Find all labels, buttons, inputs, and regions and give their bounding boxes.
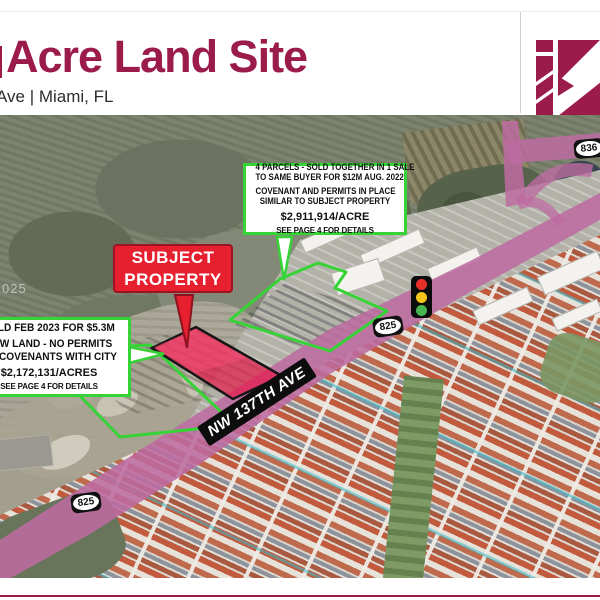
callout-line: COVENANT AND PERMITS IN PLACE [255, 186, 394, 196]
top-hairline [0, 11, 600, 12]
route-shield-text: 825 [72, 493, 100, 511]
callout-comparable-parcels: 4 PARCELS - SOLD TOGETHER IN 1 SALE TO S… [243, 163, 407, 235]
subject-property-label: SUBJECT PROPERTY [113, 244, 233, 293]
traffic-light-icon [411, 276, 432, 318]
callout-price: $2,911,914/ACRE [246, 211, 404, 223]
map-watermark: 025 [2, 281, 27, 296]
ramp-highlight [518, 202, 560, 223]
callout-line: SIMILAR TO SUBJECT PROPERTY [255, 196, 394, 206]
callout-footnote: SEE PAGE 4 FOR DETAILS [0, 383, 128, 392]
traffic-light-yellow [416, 292, 427, 303]
callout-line: 4 PARCELS - SOLD TOGETHER IN 1 SALE [255, 162, 394, 172]
subject-property-line: PROPERTY [124, 269, 222, 290]
page-title: Acre Land Site [6, 34, 307, 79]
callout-line: SOLD FEB 2023 FOR $5.3M [0, 322, 122, 334]
callout-price: $2,172,131/ACRES [0, 367, 128, 379]
callout-line: TO SAME BUYER FOR $12M AUG. 2022 [255, 172, 394, 182]
callout-sold-land: SOLD FEB 2023 FOR $5.3M RAW LAND - NO PE… [0, 317, 131, 397]
callout-line: RAW LAND - NO PERMITS [0, 338, 122, 350]
route-shield-text: 836 [575, 140, 600, 157]
slide: Acre Land Site Ave | Miami, FL [0, 0, 600, 600]
page-subtitle: Ave | Miami, FL [0, 88, 113, 105]
callout-line: OR COVENANTS WITH CITY [0, 351, 122, 363]
aerial-map: 025 4 PARCELS - SOLD TOGETHER IN 1 SALE … [0, 115, 600, 578]
callout-footnote: SEE PAGE 4 FOR DETAILS [246, 227, 404, 236]
traffic-light-red [416, 279, 427, 290]
traffic-light-green [416, 305, 427, 316]
title-cut-digit [0, 46, 2, 78]
header-divider [520, 12, 521, 113]
route-shield-text: 825 [374, 317, 402, 336]
route-shield-836: 836 [573, 138, 600, 160]
subject-property-line: SUBJECT [132, 247, 215, 268]
footer-accent-line [0, 595, 600, 597]
k-logo [536, 40, 600, 116]
